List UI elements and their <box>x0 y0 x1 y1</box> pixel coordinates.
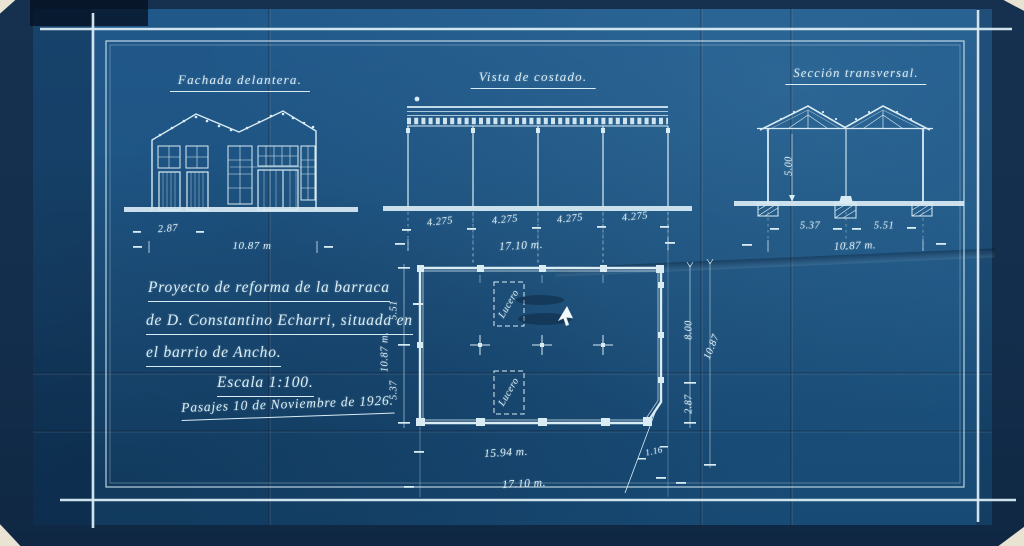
title-block-scale: Escala 1:100. <box>217 374 314 397</box>
paper-smudge <box>516 295 564 305</box>
dim-plan-left-total: 10.87 m. <box>380 332 391 372</box>
dim-front-total: 10.87 m <box>233 240 272 252</box>
cross-section-title: Sección transversal. <box>785 66 926 85</box>
dim-plan-right-top: 8.00 <box>684 320 695 340</box>
dim-plan-right-bottom: 2.87 <box>684 394 695 414</box>
title-block-line-2: de D. Constantino Echarri, situada en <box>146 312 413 335</box>
title-block-line-1: Proyecto de reforma de la barraca <box>148 279 390 302</box>
side-elevation-title: Vista de costado. <box>471 69 596 89</box>
front-elevation-title: Fachada delantera. <box>170 72 310 92</box>
blueprint-scan: Fachada delantera. Vista de costado. Sec… <box>0 0 1024 546</box>
dim-front-bay: 2.87 <box>157 223 178 235</box>
cross-section-drawing <box>734 106 964 252</box>
dim-plan-bottom-inner: 15.94 m. <box>484 446 529 460</box>
dim-section-total: 10.87 m. <box>834 239 877 252</box>
dim-section-right: 5.51 <box>874 221 894 232</box>
title-block-line-3: el barrio de Ancho. <box>146 344 281 367</box>
dim-section-height: 5.00 <box>784 156 795 176</box>
floor-plan-drawing <box>398 212 716 497</box>
dim-section-left: 5.37 <box>800 221 820 232</box>
dim-plan-bottom-total: 17.10 m. <box>502 477 547 491</box>
dim-side-total: 17.10 m. <box>499 239 544 253</box>
